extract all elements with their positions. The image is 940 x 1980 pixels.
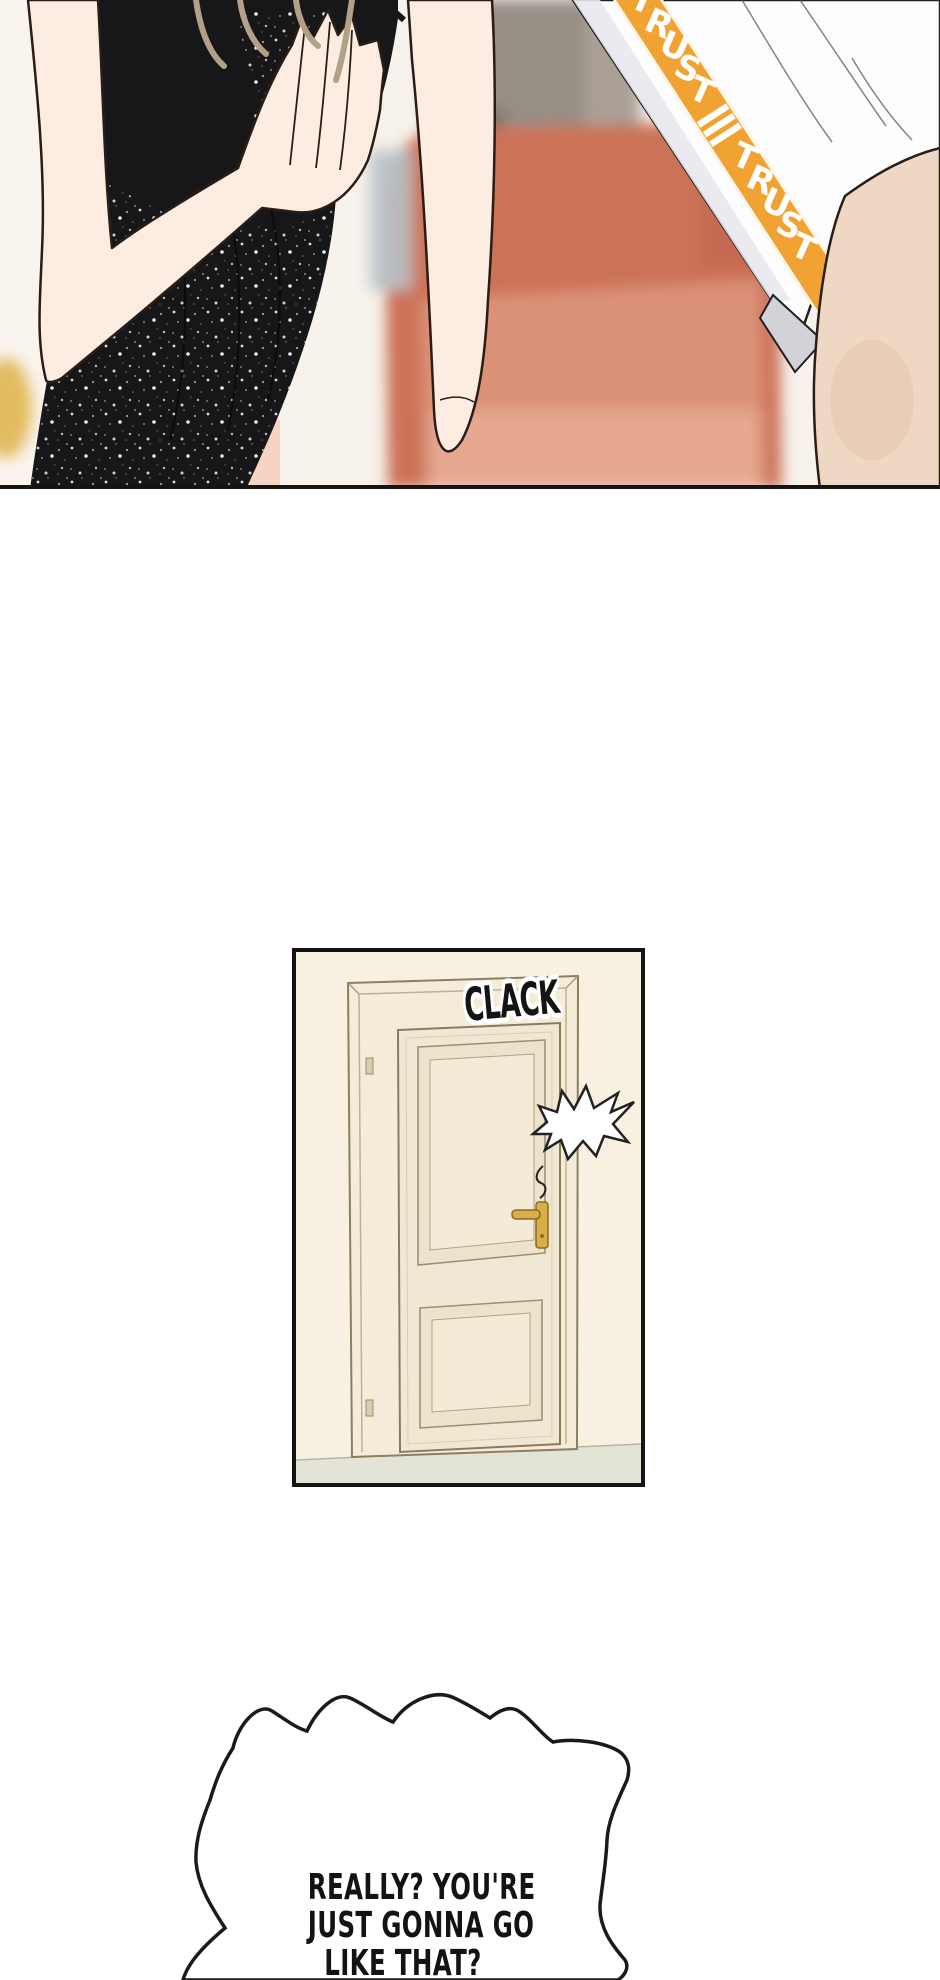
webtoon-page: TRUSTTRUST <box>0 0 940 1980</box>
speech-text: REALLY? YOU'RE JUST GONNA GO LIKE THAT? <box>308 1869 498 1980</box>
knee-shading <box>830 340 914 460</box>
hinge-top <box>366 1058 373 1074</box>
shadow <box>370 150 412 290</box>
door-panel-lower-inner <box>432 1313 530 1412</box>
speech-line: LIKE THAT? <box>308 1945 498 1980</box>
speech-line: REALLY? YOU'RE <box>308 1869 498 1907</box>
panel-characters-art: TRUSTTRUST <box>0 0 940 485</box>
sfx-clack: CLACK <box>462 970 561 1032</box>
speech-line: JUST GONNA GO <box>308 1907 498 1945</box>
panel-characters: TRUSTTRUST <box>0 0 940 489</box>
door-art <box>296 952 641 1483</box>
door-panel-upper-inner <box>430 1054 534 1250</box>
hinge-bottom <box>366 1400 373 1416</box>
